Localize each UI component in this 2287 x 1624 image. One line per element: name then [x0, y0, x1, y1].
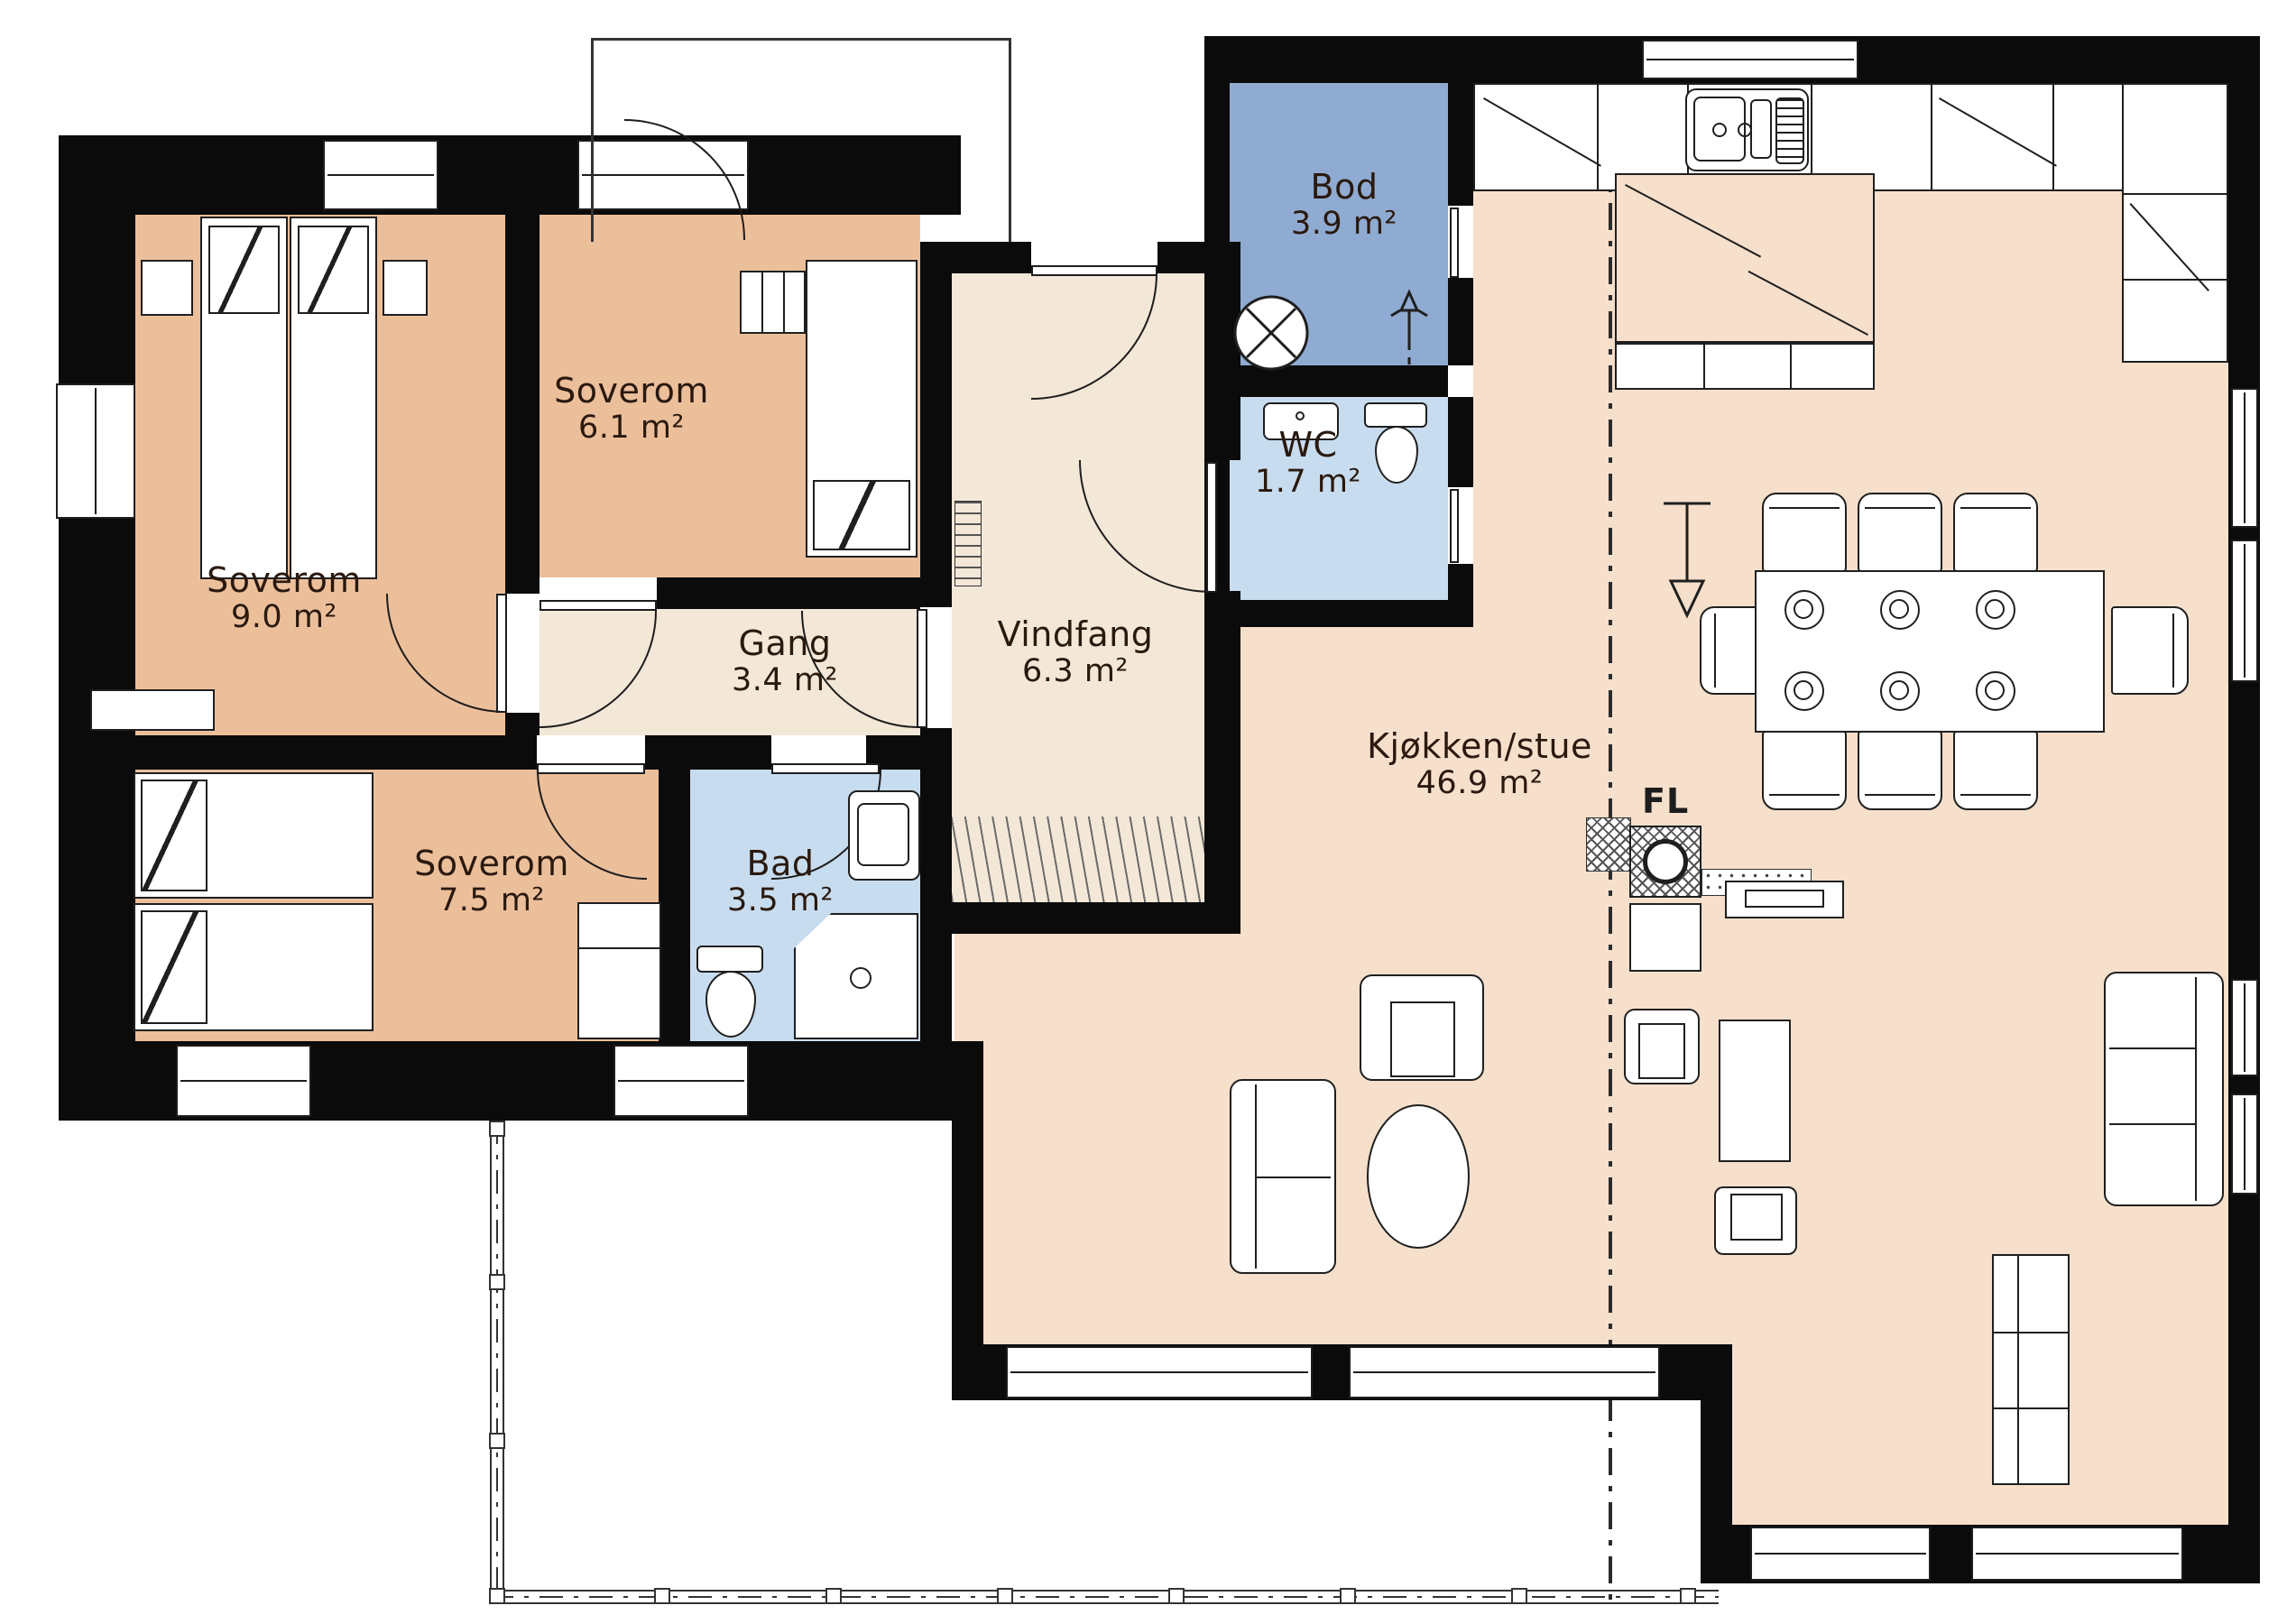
pillow	[298, 226, 369, 314]
corner-shower	[794, 913, 918, 1039]
dining-chair	[1858, 731, 1942, 810]
nightstand	[383, 260, 428, 316]
railing-post	[1680, 1588, 1696, 1604]
room-name: Soverom	[496, 372, 767, 411]
window	[2231, 388, 2258, 528]
wardrobe	[577, 902, 661, 1039]
dresser	[90, 689, 215, 731]
room-label-bad: Bad 3.5 m²	[645, 844, 916, 918]
place-setting	[1880, 590, 1920, 630]
room-name: Kjøkken/stue	[1344, 727, 1615, 766]
pillow	[141, 910, 207, 1024]
railing-post	[1511, 1588, 1527, 1604]
armchair	[1714, 1186, 1797, 1255]
kitchen-island	[1615, 173, 1875, 343]
window	[1349, 1346, 1660, 1398]
room-area: 46.9 m²	[1344, 766, 1615, 801]
toilet	[696, 946, 763, 973]
place-setting	[1976, 671, 2015, 711]
window	[323, 140, 438, 210]
chimney-hatch	[1586, 817, 1631, 872]
room-area: 9.0 m²	[149, 600, 420, 635]
dining-chair	[1762, 731, 1847, 810]
place-setting	[1880, 671, 1920, 711]
room-label-kjokken-stue: Kjøkken/stue 46.9 m²	[1344, 727, 1615, 801]
room-name: Bad	[645, 844, 916, 883]
wardrobe	[740, 271, 806, 334]
railing-post	[489, 1588, 505, 1604]
room-name: Bod	[1209, 168, 1480, 207]
door-leaf	[1450, 489, 1459, 563]
room-area: 7.5 m²	[356, 883, 627, 918]
terrace-door	[1006, 1346, 1313, 1398]
railing-post	[489, 1121, 505, 1137]
window	[176, 1045, 311, 1117]
window	[613, 1045, 749, 1117]
sofa	[1230, 1079, 1336, 1274]
railing-post	[1340, 1588, 1356, 1604]
toilet	[1364, 402, 1427, 428]
wall	[59, 135, 135, 1121]
entry-steps	[954, 501, 982, 586]
room-name: Gang	[650, 624, 920, 663]
sofa	[2104, 972, 2224, 1206]
dining-chair	[2111, 606, 2189, 695]
fireplace-label: FL	[1642, 781, 1689, 821]
railing-post	[654, 1588, 670, 1604]
window	[2231, 540, 2258, 682]
room-name: Soverom	[149, 561, 420, 600]
room-area: 3.9 m²	[1209, 207, 1480, 242]
arrow-up-icon	[1389, 287, 1429, 374]
pillow	[141, 780, 207, 891]
dining-chair	[1953, 731, 2038, 810]
room-label-soverom-9: Soverom 9.0 m²	[149, 561, 420, 635]
pillow	[813, 480, 910, 550]
armchair	[1360, 974, 1484, 1081]
kitchen-island-cabinets	[1615, 343, 1875, 390]
room-area: 3.5 m²	[645, 883, 916, 918]
tv-bench	[1725, 881, 1844, 918]
railing-post	[489, 1274, 505, 1290]
coffee-table	[1719, 1020, 1791, 1162]
kitchen-counter	[2122, 83, 2228, 363]
window	[2231, 979, 2258, 1076]
wall	[1701, 1344, 1732, 1525]
fireplace	[1629, 826, 1701, 898]
room-area: 3.4 m²	[650, 663, 920, 698]
place-setting	[1784, 671, 1824, 711]
room-label-gang: Gang 3.4 m²	[650, 624, 920, 698]
room-area: 6.1 m²	[496, 411, 767, 446]
pillow	[208, 226, 280, 314]
railing-post	[825, 1588, 842, 1604]
nightstand	[141, 260, 193, 316]
dining-chair	[1953, 493, 2038, 572]
dining-chair	[1762, 493, 1847, 572]
room-label-bod: Bod 3.9 m²	[1209, 168, 1480, 242]
wall	[2228, 36, 2260, 1583]
terrace-railing	[490, 1121, 504, 1604]
room-label-soverom-6: Soverom 6.1 m²	[496, 372, 767, 446]
room-label-vindfang: Vindfang 6.3 m²	[940, 615, 1211, 689]
oval-table	[1367, 1104, 1470, 1249]
room-area: 6.3 m²	[940, 654, 1211, 689]
entry-mat-grate	[952, 817, 1212, 902]
place-setting	[1784, 590, 1824, 630]
antenna-symbol	[1658, 498, 1716, 624]
railing-post	[997, 1588, 1013, 1604]
place-setting	[1976, 590, 2015, 630]
entrance-porch	[591, 38, 1011, 242]
door-opening	[505, 594, 539, 713]
room-name: Soverom	[356, 844, 627, 883]
wall	[1204, 600, 1473, 627]
window	[1642, 40, 1858, 79]
room-label-wc: WC 1.7 m²	[1173, 426, 1443, 500]
dining-chair	[1858, 493, 1942, 572]
window	[1750, 1527, 1931, 1581]
window	[1971, 1527, 2183, 1581]
terrace-railing	[490, 1590, 1719, 1604]
wall	[952, 1041, 983, 1344]
railing-post	[1168, 1588, 1185, 1604]
fan-icon	[1232, 294, 1310, 372]
room-name: Vindfang	[940, 615, 1211, 654]
armchair	[1624, 1009, 1700, 1084]
room-fill-kjokken-stue	[1732, 1344, 2228, 1525]
wood-stove	[1629, 903, 1701, 972]
room-label-soverom-7: Soverom 7.5 m²	[356, 844, 627, 918]
window	[2231, 1093, 2258, 1195]
room-name: WC	[1173, 426, 1443, 465]
kitchen-sink	[1685, 88, 1809, 171]
railing-post	[489, 1433, 505, 1449]
door-leaf	[539, 600, 657, 611]
wall	[920, 902, 1240, 934]
room-area: 1.7 m²	[1173, 465, 1443, 500]
window	[56, 383, 135, 519]
sideboard	[1992, 1254, 2070, 1485]
floor-plan: FL Sover	[0, 0, 2287, 1624]
